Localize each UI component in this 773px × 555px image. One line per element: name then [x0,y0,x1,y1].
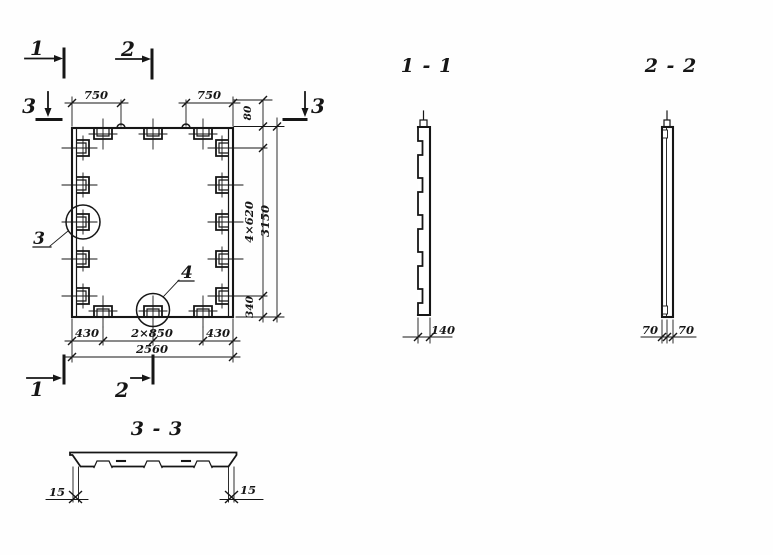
plan-view: 3 4 1 2 3 3 [22,36,325,402]
section-3-3-title: 3 - 3 [131,418,184,440]
svg-text:3150: 3150 [258,205,272,237]
section-1-1-title: 1 - 1 [401,55,454,77]
svg-text:70: 70 [642,323,658,337]
section-marker-1-bottom: 1 [27,356,64,401]
svg-text:430: 430 [206,326,230,340]
detail-4-label: 4 [181,263,193,283]
svg-text:4×620: 4×620 [242,201,256,243]
section-view-3-3: 3 - 3 15 15 [46,418,263,503]
svg-text:340: 340 [244,295,256,318]
dim-15-left: 15 [46,467,88,503]
section-marker-2-bottom: 2 [114,356,153,402]
section-2-2-title: 2 - 2 [644,55,698,77]
svg-text:750: 750 [84,88,108,102]
panel-outline [72,128,233,317]
svg-text:2×850: 2×850 [130,326,173,340]
dim-70-70: 70 70 [641,320,696,343]
svg-text:1: 1 [30,36,44,60]
dim-bottom-chain: 430 2×850 430 2560 [65,319,240,362]
dim-140: 140 [403,318,455,343]
svg-text:3: 3 [311,94,325,118]
dim-right-chain: 4×620 340 3150 [236,100,284,322]
svg-text:750: 750 [197,88,221,102]
svg-text:70: 70 [678,323,694,337]
panel-drawing-svg: 3 4 1 2 3 3 [0,0,773,555]
section-marker-3-right: 3 [284,92,325,120]
dim-edge-80: 80 [234,96,284,131]
section-marker-3-left: 3 [22,92,61,120]
technical-drawing-sheet: 3 4 1 2 3 3 [0,0,773,555]
section-view-2-2: 2 - 2 70 70 [641,55,697,343]
svg-text:2560: 2560 [135,342,168,356]
section-marker-2-top: 2 [116,37,152,78]
detail-3-label: 3 [33,229,45,249]
section-view-1-1: 1 - 1 140 [401,55,455,343]
section-marker-1-top: 1 [25,36,64,77]
svg-text:3: 3 [22,94,36,118]
svg-text:2: 2 [120,37,135,61]
svg-text:430: 430 [75,326,99,340]
svg-text:1: 1 [30,377,44,401]
svg-text:15: 15 [49,485,65,499]
dim-15-right: 15 [220,467,263,503]
dim-top-750: 750 750 [65,88,240,126]
svg-text:15: 15 [240,483,256,497]
svg-text:2: 2 [114,378,129,402]
svg-text:80: 80 [242,105,254,120]
svg-text:140: 140 [431,323,455,337]
